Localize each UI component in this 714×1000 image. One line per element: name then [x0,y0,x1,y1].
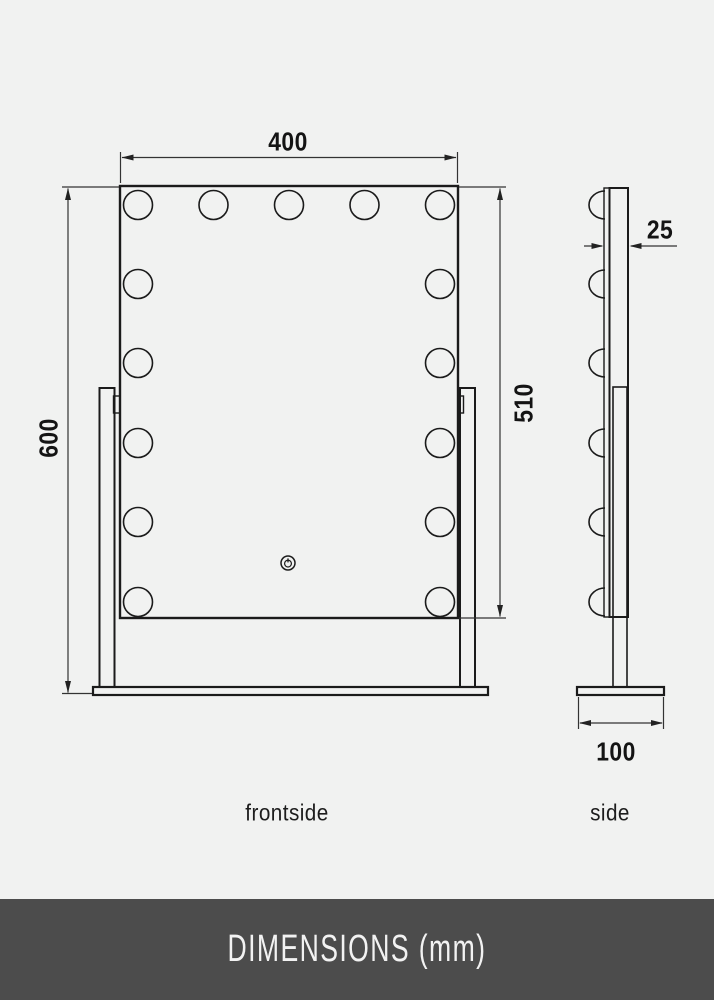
footer-title: DIMENSIONS (mm) [228,928,487,971]
arrowhead-left [579,720,591,726]
dim-label-total-height: 600 [34,418,65,458]
dimension-sheet: 400 600 510 25 100 frontside side DIMENS… [0,0,714,1000]
front-left-leg [100,388,115,687]
bulb-side-icon [589,191,605,219]
side-base [577,687,664,695]
front-base [93,687,488,695]
dim-label-depth: 25 [647,215,673,246]
arrowhead-left [630,243,642,249]
dim-100-graphic [579,697,664,729]
arrowhead-right [445,155,457,161]
arrowhead-left [122,155,134,161]
arrowhead-up [65,188,71,200]
footer-band: DIMENSIONS (mm) [0,899,714,1000]
arrowhead-down [65,681,71,693]
dim-label-width: 400 [268,127,308,158]
front-view [93,186,488,695]
bulb-side-icon [589,429,605,457]
dim-label-mirror-height: 510 [509,383,540,423]
dim-510-graphic [459,187,506,618]
dim-label-base-depth: 100 [596,737,636,768]
technical-drawing [0,0,714,1000]
bulb-side-icon [589,270,605,298]
arrowhead-right [651,720,663,726]
front-right-leg [460,388,475,687]
side-leg [613,387,627,687]
bulb-side-icon [589,349,605,377]
arrowhead-up [497,188,503,200]
front-view-label: frontside [245,800,328,827]
arrowhead-right [592,243,604,249]
bulb-side-icon [589,588,605,616]
side-view-label: side [590,800,630,827]
arrowhead-down [497,605,503,617]
mirror-frame [120,186,458,618]
dim-600-graphic [62,187,119,694]
side-bulbs [589,191,605,616]
side-view [577,188,664,695]
bulb-side-icon [589,508,605,536]
